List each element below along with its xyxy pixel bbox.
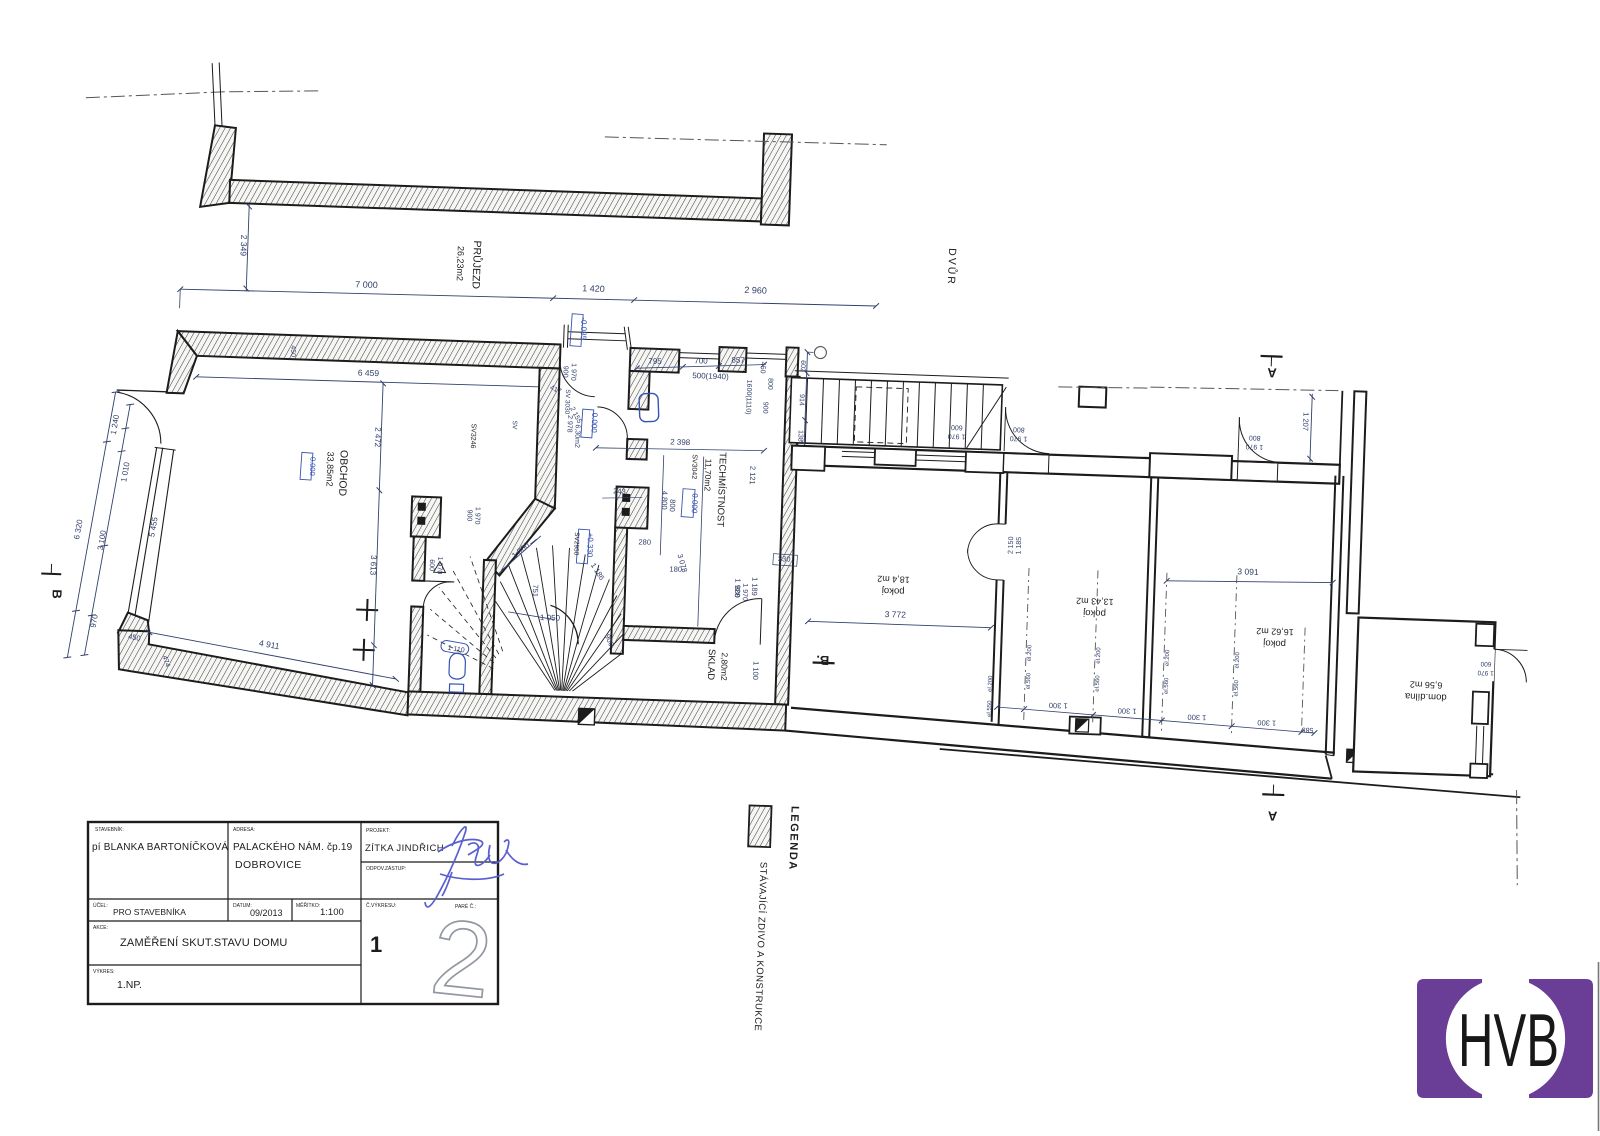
- svg-text:el.200: el.200: [1027, 644, 1034, 661]
- svg-text:PROJEKT:: PROJEKT:: [366, 828, 390, 834]
- svg-text:DVŮR: DVŮR: [945, 248, 959, 286]
- svg-text:B: B: [49, 589, 64, 599]
- svg-text:1 970: 1 970: [435, 557, 443, 575]
- svg-text:280: 280: [638, 537, 651, 546]
- svg-text:pokoj: pokoj: [882, 585, 905, 597]
- svg-text:VÝKRES:: VÝKRES:: [93, 968, 115, 975]
- svg-text:SV3042: SV3042: [690, 454, 698, 479]
- svg-text:0.000: 0.000: [589, 413, 599, 434]
- svg-text:800: 800: [668, 499, 677, 512]
- svg-text:el.200: el.200: [1096, 647, 1103, 664]
- svg-text:el.200: el.200: [1165, 649, 1172, 666]
- svg-text:DOBROVICE: DOBROVICE: [235, 859, 302, 871]
- svg-text:B.: B.: [816, 653, 830, 668]
- svg-text:800: 800: [766, 378, 773, 390]
- svg-text:800: 800: [1249, 434, 1261, 441]
- svg-text:6 459: 6 459: [358, 367, 380, 378]
- svg-text:el.200: el.200: [988, 675, 995, 692]
- svg-text:857: 857: [731, 355, 745, 364]
- svg-text:ÚČEL:: ÚČEL:: [93, 902, 108, 909]
- svg-text:AKCE:: AKCE:: [93, 925, 108, 931]
- svg-text:6,56 m2: 6,56 m2: [1410, 679, 1443, 690]
- svg-text:-0.085: -0.085: [579, 317, 589, 341]
- svg-text:pokoj: pokoj: [1083, 607, 1106, 619]
- svg-text:HVB: HVB: [1458, 1000, 1559, 1083]
- svg-text:el.560: el.560: [1095, 675, 1102, 692]
- svg-text:138: 138: [796, 430, 803, 442]
- svg-text:1 300: 1 300: [1118, 706, 1137, 716]
- svg-text:STAVEBNÍK:: STAVEBNÍK:: [95, 826, 124, 833]
- svg-text:600: 600: [1480, 660, 1491, 667]
- svg-text:el.560: el.560: [1164, 677, 1171, 694]
- svg-text:SV3246: SV3246: [469, 423, 477, 448]
- svg-text:914: 914: [798, 394, 805, 406]
- svg-text:OBCHOD: OBCHOD: [336, 450, 350, 497]
- svg-text:pí BLANKA BARTONÍČKOVÁ: pí BLANKA BARTONÍČKOVÁ: [92, 840, 228, 853]
- svg-text:2 349: 2 349: [238, 235, 249, 257]
- svg-text:el.560: el.560: [1026, 672, 1033, 689]
- svg-text:1 185: 1 185: [1016, 537, 1024, 555]
- svg-text:585: 585: [1302, 726, 1314, 733]
- svg-text:09/2013: 09/2013: [250, 908, 283, 918]
- svg-text:450: 450: [759, 362, 766, 374]
- svg-text:ODPOV.ZÁSTUP:: ODPOV.ZÁSTUP:: [366, 865, 406, 872]
- svg-text:1:100: 1:100: [320, 907, 344, 918]
- svg-text:3 772: 3 772: [885, 609, 907, 620]
- svg-text:el.200: el.200: [1235, 651, 1242, 668]
- svg-text:330: 330: [778, 554, 791, 563]
- svg-text:1 420: 1 420: [582, 283, 605, 294]
- svg-text:1: 1: [370, 932, 382, 957]
- svg-text:18,4 m2: 18,4 m2: [877, 574, 910, 585]
- svg-text:7 000: 7 000: [355, 279, 378, 290]
- svg-text:PALACKÉHO NÁM. čp.19: PALACKÉHO NÁM. čp.19: [233, 840, 353, 853]
- svg-text:ZÍTKA JINDŘICH: ZÍTKA JINDŘICH: [365, 843, 444, 854]
- svg-text:MĚŘÍTKO:: MĚŘÍTKO:: [296, 901, 320, 909]
- svg-text:1 207: 1 207: [1301, 412, 1311, 431]
- svg-text:795: 795: [648, 357, 662, 366]
- svg-text:751: 751: [531, 584, 540, 597]
- svg-text:SKLAD: SKLAD: [705, 649, 717, 681]
- svg-text:el.560: el.560: [1234, 679, 1241, 696]
- svg-text:1 970: 1 970: [948, 432, 966, 440]
- svg-text:3 091: 3 091: [1237, 566, 1259, 577]
- svg-text:500(1940): 500(1940): [692, 371, 729, 381]
- svg-text:SV: SV: [511, 420, 518, 430]
- svg-text:900: 900: [465, 509, 472, 521]
- svg-text:900: 900: [561, 366, 568, 378]
- svg-text:1 189: 1 189: [750, 577, 760, 596]
- svg-text:1 300: 1 300: [1257, 718, 1276, 728]
- svg-text:26,23m2: 26,23m2: [455, 246, 466, 281]
- svg-text:el.550: el.550: [987, 700, 994, 717]
- svg-text:2 150: 2 150: [1008, 536, 1016, 554]
- svg-text:700: 700: [694, 356, 708, 365]
- svg-text:2 398: 2 398: [670, 437, 691, 447]
- svg-text:PRO STAVEBNÍKA: PRO STAVEBNÍKA: [113, 907, 186, 917]
- svg-text:1 970: 1 970: [569, 363, 577, 381]
- svg-text:PRŮJEZD: PRŮJEZD: [469, 240, 484, 289]
- svg-text:+0.330: +0.330: [585, 533, 595, 559]
- svg-text:2 472: 2 472: [373, 427, 383, 448]
- svg-text:900: 900: [761, 402, 768, 414]
- svg-text:DATUM:: DATUM:: [233, 903, 252, 909]
- svg-text:243: 243: [613, 486, 626, 495]
- svg-text:600: 600: [428, 559, 435, 571]
- svg-text:6,30m2: 6,30m2: [573, 424, 581, 448]
- svg-text:1 300: 1 300: [1187, 713, 1206, 723]
- svg-text:1 100: 1 100: [751, 661, 761, 680]
- svg-text:ZAMĚŘENÍ SKUT.STAVU DOMU: ZAMĚŘENÍ SKUT.STAVU DOMU: [120, 936, 288, 949]
- svg-text:450: 450: [289, 345, 296, 357]
- svg-text:A: A: [1266, 365, 1277, 380]
- svg-text:A: A: [1267, 808, 1278, 823]
- svg-text:1600(1110): 1600(1110): [744, 380, 752, 415]
- svg-text:33,85m2: 33,85m2: [324, 451, 335, 486]
- svg-text:2 978: 2 978: [565, 415, 573, 433]
- svg-text:13,43 m2: 13,43 m2: [1076, 596, 1114, 607]
- svg-text:1 928: 1 928: [733, 578, 743, 597]
- svg-text:dom.dílna: dom.dílna: [1404, 690, 1447, 702]
- svg-text:2: 2: [426, 897, 497, 1021]
- svg-text:LEGENDA: LEGENDA: [786, 806, 800, 871]
- svg-text:2 960: 2 960: [744, 285, 767, 296]
- svg-text:2 121: 2 121: [748, 466, 758, 485]
- svg-text:2,80m2: 2,80m2: [719, 652, 730, 681]
- svg-text:Č.VÝKRESU:: Č.VÝKRESU:: [366, 902, 396, 909]
- svg-text:1 970: 1 970: [1245, 442, 1263, 450]
- svg-text:pokoj: pokoj: [1263, 637, 1286, 649]
- svg-text:1 300: 1 300: [1049, 701, 1068, 711]
- svg-text:16,62 m2: 16,62 m2: [1256, 626, 1294, 637]
- svg-text:ADRESA:: ADRESA:: [233, 827, 255, 833]
- svg-text:11,70m2: 11,70m2: [703, 459, 714, 492]
- svg-text:1 970: 1 970: [1010, 434, 1028, 442]
- svg-text:1 970: 1 970: [1477, 669, 1494, 677]
- svg-text:600: 600: [951, 423, 963, 430]
- svg-text:1 970: 1 970: [473, 507, 481, 525]
- svg-text:800: 800: [1013, 425, 1025, 432]
- svg-text:602: 602: [799, 360, 806, 372]
- svg-text:SV2950: SV2950: [572, 532, 580, 556]
- svg-text:1.NP.: 1.NP.: [117, 979, 142, 991]
- svg-text:3 613: 3 613: [368, 555, 378, 576]
